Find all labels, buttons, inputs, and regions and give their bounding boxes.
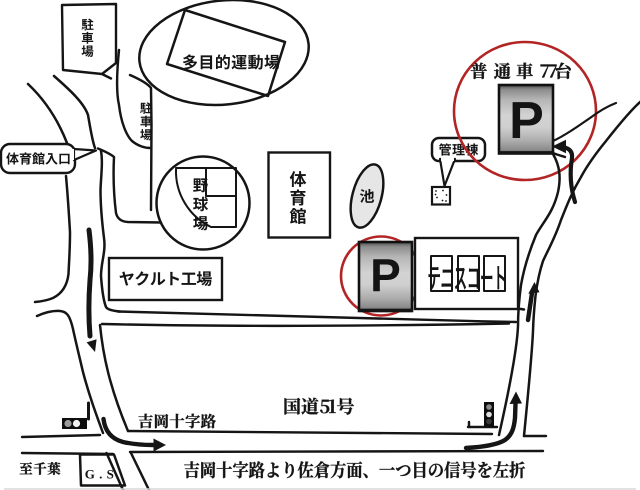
svg-text:P: P xyxy=(509,92,544,150)
svg-text:G . S: G . S xyxy=(85,467,115,482)
svg-text:P: P xyxy=(370,250,401,302)
